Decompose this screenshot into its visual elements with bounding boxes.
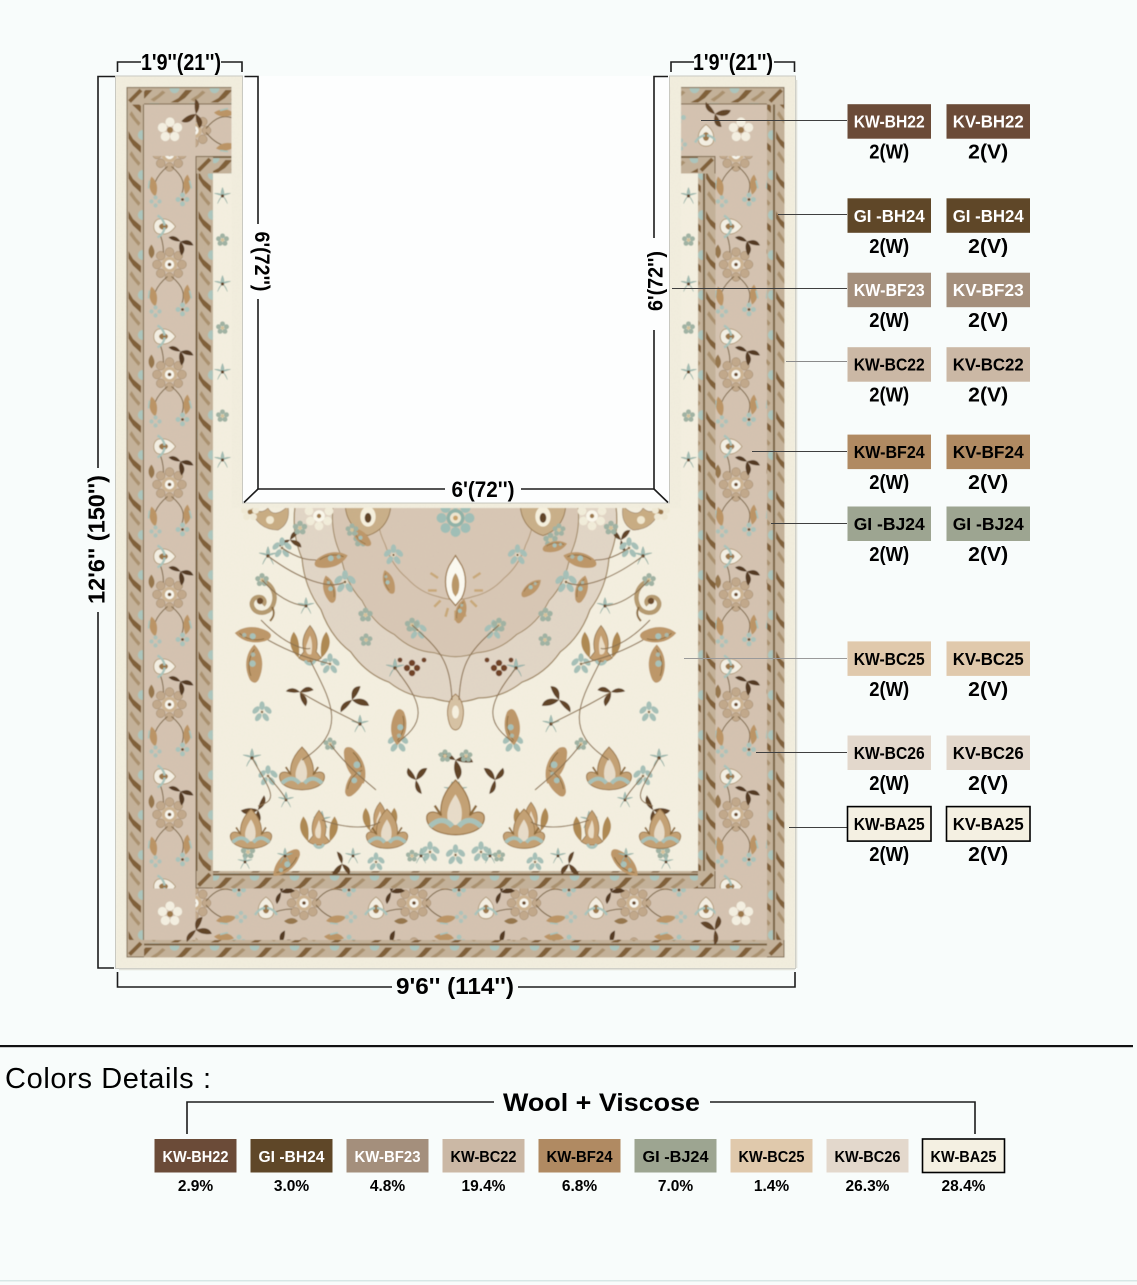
svg-text:GI -BJ24: GI -BJ24 xyxy=(953,514,1024,534)
svg-text:2(V): 2(V) xyxy=(968,844,1008,866)
svg-text:12'6'' (150''): 12'6'' (150'') xyxy=(84,475,110,604)
svg-text:6'(72''): 6'(72'') xyxy=(645,251,668,311)
svg-text:KW-BC25: KW-BC25 xyxy=(739,1149,805,1166)
svg-text:1'9''(21''): 1'9''(21'') xyxy=(141,49,221,75)
svg-text:6'(72''): 6'(72'') xyxy=(452,477,515,502)
svg-text:2(V): 2(V) xyxy=(968,544,1008,566)
svg-text:KV-BC25: KV-BC25 xyxy=(953,649,1024,669)
svg-text:2(W): 2(W) xyxy=(869,472,909,494)
svg-text:26.3%: 26.3% xyxy=(846,1178,890,1195)
svg-text:2(V): 2(V) xyxy=(968,472,1008,494)
svg-text:GI -BH24: GI -BH24 xyxy=(854,206,925,226)
svg-text:2(W): 2(W) xyxy=(869,310,909,332)
svg-text:KW-BC22: KW-BC22 xyxy=(854,355,925,375)
svg-text:KV-BF23: KV-BF23 xyxy=(953,280,1024,300)
svg-text:KW-BF24: KW-BF24 xyxy=(854,442,925,462)
svg-text:2.9%: 2.9% xyxy=(178,1178,214,1195)
svg-text:2(V): 2(V) xyxy=(968,773,1008,795)
svg-text:28.4%: 28.4% xyxy=(942,1178,986,1195)
svg-text:2(V): 2(V) xyxy=(968,385,1008,407)
svg-text:KW-BH22: KW-BH22 xyxy=(163,1149,229,1166)
svg-text:KW-BF23: KW-BF23 xyxy=(854,280,925,300)
svg-text:KV-BA25: KV-BA25 xyxy=(953,814,1024,834)
svg-text:KW-BC26: KW-BC26 xyxy=(854,743,925,763)
svg-text:KW-BC25: KW-BC25 xyxy=(854,649,925,669)
svg-text:KW-BF23: KW-BF23 xyxy=(355,1149,421,1166)
svg-text:KW-BC26: KW-BC26 xyxy=(835,1149,901,1166)
svg-text:GI -BJ24: GI -BJ24 xyxy=(643,1149,709,1166)
svg-text:GI -BH24: GI -BH24 xyxy=(259,1149,325,1166)
svg-text:2(W): 2(W) xyxy=(869,679,909,701)
svg-text:KV-BC26: KV-BC26 xyxy=(953,743,1024,763)
svg-text:2(V): 2(V) xyxy=(968,679,1008,701)
svg-text:1.4%: 1.4% xyxy=(754,1178,790,1195)
svg-text:KW-BA25: KW-BA25 xyxy=(854,814,925,834)
svg-text:19.4%: 19.4% xyxy=(462,1178,506,1195)
svg-text:2(W): 2(W) xyxy=(869,236,909,258)
svg-text:KW-BH22: KW-BH22 xyxy=(854,112,925,132)
svg-text:2(W): 2(W) xyxy=(869,544,909,566)
svg-text:2(W): 2(W) xyxy=(869,142,909,164)
svg-text:2(V): 2(V) xyxy=(968,310,1008,332)
svg-text:3.0%: 3.0% xyxy=(274,1178,310,1195)
svg-text:Colors Details :: Colors Details : xyxy=(5,1063,211,1095)
svg-text:KV-BF24: KV-BF24 xyxy=(953,442,1024,462)
svg-text:2(W): 2(W) xyxy=(869,385,909,407)
svg-text:1'9''(21''): 1'9''(21'') xyxy=(693,49,773,75)
svg-text:7.0%: 7.0% xyxy=(658,1178,694,1195)
svg-text:GI -BH24: GI -BH24 xyxy=(953,206,1024,226)
svg-text:KW-BC22: KW-BC22 xyxy=(451,1149,517,1166)
svg-text:6'(72''): 6'(72'') xyxy=(250,232,273,292)
svg-text:6.8%: 6.8% xyxy=(562,1178,598,1195)
svg-text:9'6'' (114''): 9'6'' (114'') xyxy=(396,973,514,999)
svg-text:2(W): 2(W) xyxy=(869,773,909,795)
svg-text:4.8%: 4.8% xyxy=(370,1178,406,1195)
svg-text:Wool + Viscose: Wool + Viscose xyxy=(503,1089,700,1117)
svg-text:KW-BF24: KW-BF24 xyxy=(547,1149,613,1166)
svg-text:2(V): 2(V) xyxy=(968,236,1008,258)
svg-text:GI -BJ24: GI -BJ24 xyxy=(854,514,925,534)
svg-text:KV-BH22: KV-BH22 xyxy=(953,112,1024,132)
svg-text:KV-BC22: KV-BC22 xyxy=(953,355,1024,375)
svg-text:2(V): 2(V) xyxy=(968,142,1008,164)
svg-text:2(W): 2(W) xyxy=(869,844,909,866)
svg-text:KW-BA25: KW-BA25 xyxy=(931,1149,997,1166)
